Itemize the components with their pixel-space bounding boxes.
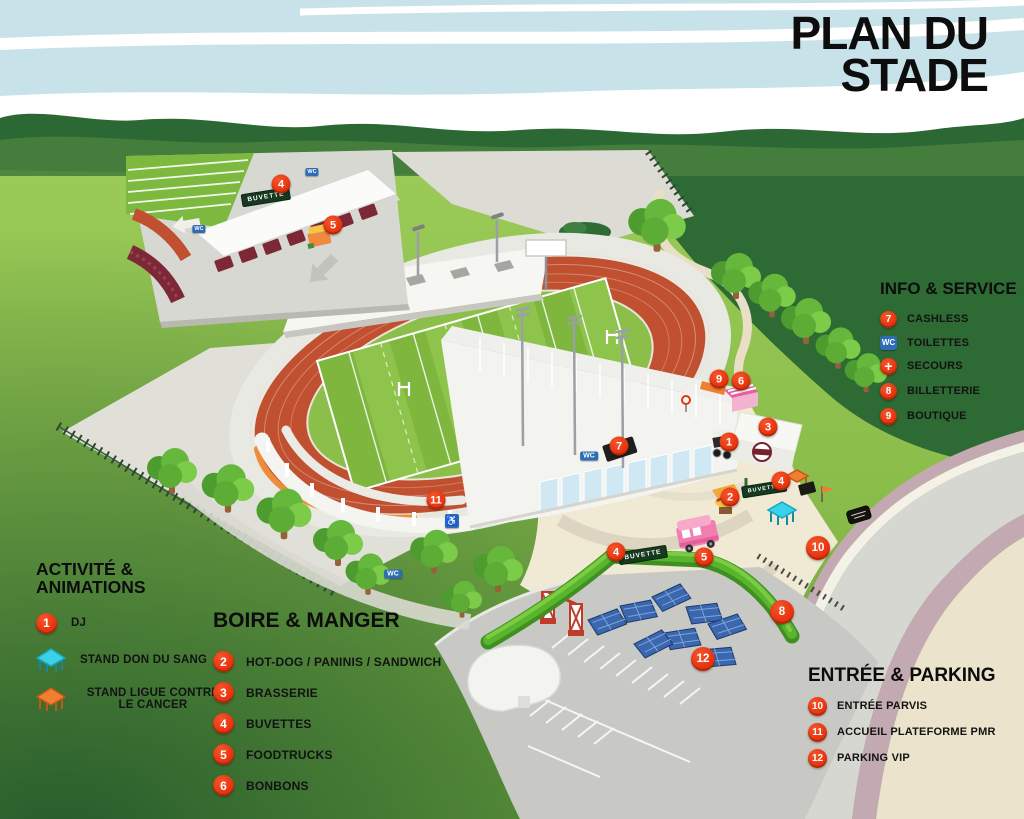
legend-entrance: ENTRÉE & PARKING 10 ENTRÉE PARVIS 11 ACC… <box>808 666 1022 775</box>
map-marker-3: 3 <box>759 418 778 437</box>
legend-item-billetterie: 8 BILLETTERIE <box>880 383 1022 400</box>
legend-activities-heading: ACTIVITÉ & ANIMATIONS <box>36 560 156 597</box>
map-marker-9: 9 <box>710 370 729 389</box>
wc-sign-plaza: WC <box>384 570 402 579</box>
marker-badge-2: 2 <box>213 651 234 672</box>
page-title: PLAN DU STADE <box>791 12 988 97</box>
inset-panel <box>126 150 410 328</box>
map-marker-10: 10 <box>806 536 830 560</box>
marker-badge-11: 11 <box>808 723 827 742</box>
tent-cyan-icon <box>36 647 66 673</box>
wc-icon: WC <box>880 336 897 350</box>
legend-info-heading: INFO & SERVICE <box>880 280 1022 298</box>
marker-badge-1: 1 <box>36 613 57 634</box>
wc-sign-inset-2: WC <box>192 225 205 233</box>
title-line-1: PLAN DU <box>791 12 988 54</box>
legend-entrance-heading: ENTRÉE & PARKING <box>808 666 1022 686</box>
map-marker-8: 8 <box>770 600 794 624</box>
marker-badge-5: 5 <box>213 744 234 765</box>
legend-info: INFO & SERVICE 7 CASHLESS WC TOILETTES +… <box>880 280 1022 433</box>
map-marker-5b: 5 <box>695 548 714 567</box>
legend-item-cashless: 7 CASHLESS <box>880 311 1022 328</box>
map-marker-11: 11 <box>427 491 446 510</box>
legend-item-foodtrucks: 5 FOODTRUCKS <box>213 744 443 765</box>
marker-badge-12: 12 <box>808 749 827 768</box>
map-marker-7: 7 <box>610 437 629 456</box>
first-aid-cross-icon: + <box>880 358 897 375</box>
map-marker-12: 12 <box>691 647 715 671</box>
marker-badge-6: 6 <box>213 775 234 796</box>
legend-item-boutique: 9 BOUTIQUE <box>880 408 1022 425</box>
marker-badge-4: 4 <box>213 713 234 734</box>
accessible-icon: ♿ <box>445 514 459 528</box>
marker-badge-7: 7 <box>880 311 897 328</box>
map-marker-6: 6 <box>732 372 751 391</box>
tent-orange-icon <box>36 686 66 712</box>
legend-item-secours: + SECOURS <box>880 358 1022 375</box>
marker-badge-10: 10 <box>808 697 827 716</box>
marker-badge-9: 9 <box>880 408 897 425</box>
legend-item-brasserie: 3 BRASSERIE <box>213 682 443 703</box>
stadium-map-poster: 4 5 9 6 3 1 7 11 4 2 10 4 5 8 12 BUVETTE… <box>0 0 1024 819</box>
map-marker-4: 4 <box>272 175 291 194</box>
legend-item-entree-parvis: 10 ENTRÉE PARVIS <box>808 697 1022 716</box>
map-marker-4c: 4 <box>607 543 626 562</box>
legend-food-heading: BOIRE & MANGER <box>213 610 443 632</box>
legend-item-parking-vip: 12 PARKING VIP <box>808 749 1022 768</box>
legend-item-hotdog: 2 HOT-DOG / PANINIS / SANDWICH <box>213 651 443 672</box>
legend-activities: ACTIVITÉ & ANIMATIONS 1 DJ STAND DON DU … <box>36 560 226 725</box>
legend-item-buvettes: 4 BUVETTES <box>213 713 443 734</box>
map-marker-5: 5 <box>324 216 343 235</box>
map-marker-1: 1 <box>720 433 739 452</box>
wc-sign-building: WC <box>580 452 598 461</box>
map-marker-4b: 4 <box>772 472 791 491</box>
map-marker-2: 2 <box>721 488 740 507</box>
legend-item-ligue-cancer: STAND LIGUE CONTRE LE CANCER <box>36 686 226 712</box>
title-line-2: STADE <box>791 54 988 96</box>
legend-food: BOIRE & MANGER 2 HOT-DOG / PANINIS / SAN… <box>213 610 443 806</box>
legend-item-accueil-pmr: 11 ACCUEIL PLATEFORME PMR <box>808 723 1022 742</box>
legend-item-don-du-sang: STAND DON DU SANG <box>36 647 226 673</box>
legend-item-bonbons: 6 BONBONS <box>213 775 443 796</box>
marker-badge-3: 3 <box>213 682 234 703</box>
wc-sign-inset-1: WC <box>305 168 318 176</box>
legend-item-dj: 1 DJ <box>36 613 226 634</box>
legend-item-toilettes: WC TOILETTES <box>880 336 1022 350</box>
marker-badge-8: 8 <box>880 383 897 400</box>
